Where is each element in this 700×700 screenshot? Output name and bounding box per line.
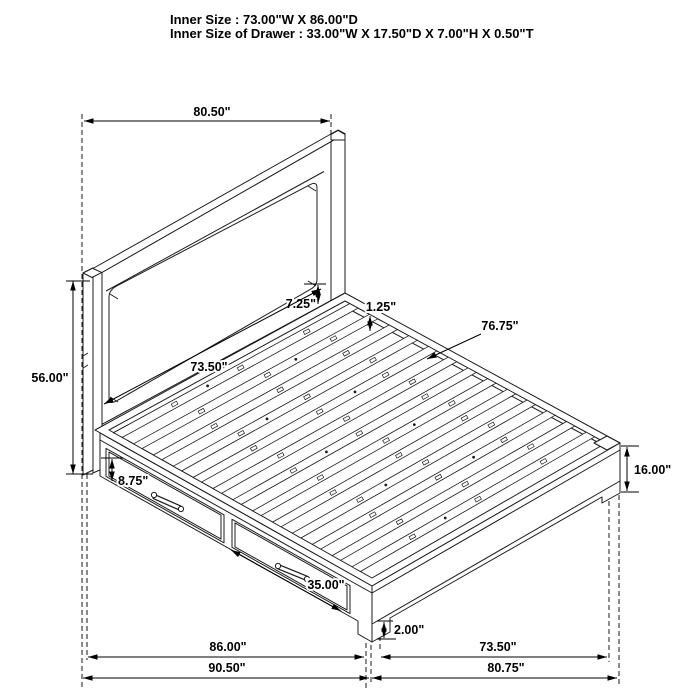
dim-overall-depth: 90.50" — [83, 661, 369, 678]
dim-side-rail-length-label: 86.00" — [209, 640, 246, 654]
dim-headboard-width: 80.50" — [84, 105, 330, 121]
dim-platform-height: 16.00" — [621, 446, 671, 492]
dim-headboard-width-label: 80.50" — [193, 105, 230, 119]
dim-platform-height-label: 16.00" — [634, 463, 671, 477]
dim-slat-recess-label: 1.25" — [366, 300, 396, 314]
dim-foot-rail-length-label: 73.50" — [479, 640, 516, 654]
handle-knob — [178, 506, 183, 511]
slat-dot — [325, 451, 328, 454]
handle-knob — [275, 563, 280, 568]
inner-size-text: Inner Size : 73.00"W X 86.00"D — [170, 12, 358, 27]
dim-leg-clearance: 2.00" — [377, 621, 424, 639]
dim-overall-width: 80.75" — [372, 661, 617, 678]
slat-dot — [354, 391, 357, 394]
dim-slat-length: 76.75" — [427, 319, 519, 359]
slat-dot — [444, 517, 447, 520]
slat-dot — [206, 385, 209, 388]
handle-knob — [151, 492, 156, 497]
headboard-left-post-side — [83, 268, 93, 475]
dim-drawer-opening-height-label: 8.75" — [118, 474, 148, 488]
dim-panel-width-label: 73.50" — [190, 360, 227, 374]
dim-side-rail-length: 86.00" — [88, 640, 364, 657]
slat-dot — [413, 423, 416, 426]
slat-dot — [384, 484, 387, 487]
drawer-inner-size-text: Inner Size of Drawer : 33.00"W X 17.50"D… — [170, 26, 534, 41]
drawing-title: Inner Size : 73.00"W X 86.00"D Inner Siz… — [170, 12, 534, 41]
dim-overall-depth-label: 90.50" — [208, 661, 245, 675]
dim-leg-clearance-label: 2.00" — [394, 623, 424, 637]
bed-technical-drawing: Inner Size : 73.00"W X 86.00"D Inner Siz… — [0, 0, 700, 700]
dim-headboard-height-label: 56.00" — [31, 371, 68, 385]
slat-dot — [266, 418, 269, 421]
slat-dot — [472, 456, 475, 459]
slat-dot — [294, 358, 297, 361]
dim-slat-length-label: 76.75" — [481, 319, 518, 333]
dim-foot-rail-length: 73.50" — [381, 640, 607, 657]
dim-drawer-front-width-label: 35.00" — [307, 578, 344, 592]
dim-overall-width-label: 80.75" — [487, 661, 524, 675]
headboard-right-post-cap — [331, 131, 345, 141]
